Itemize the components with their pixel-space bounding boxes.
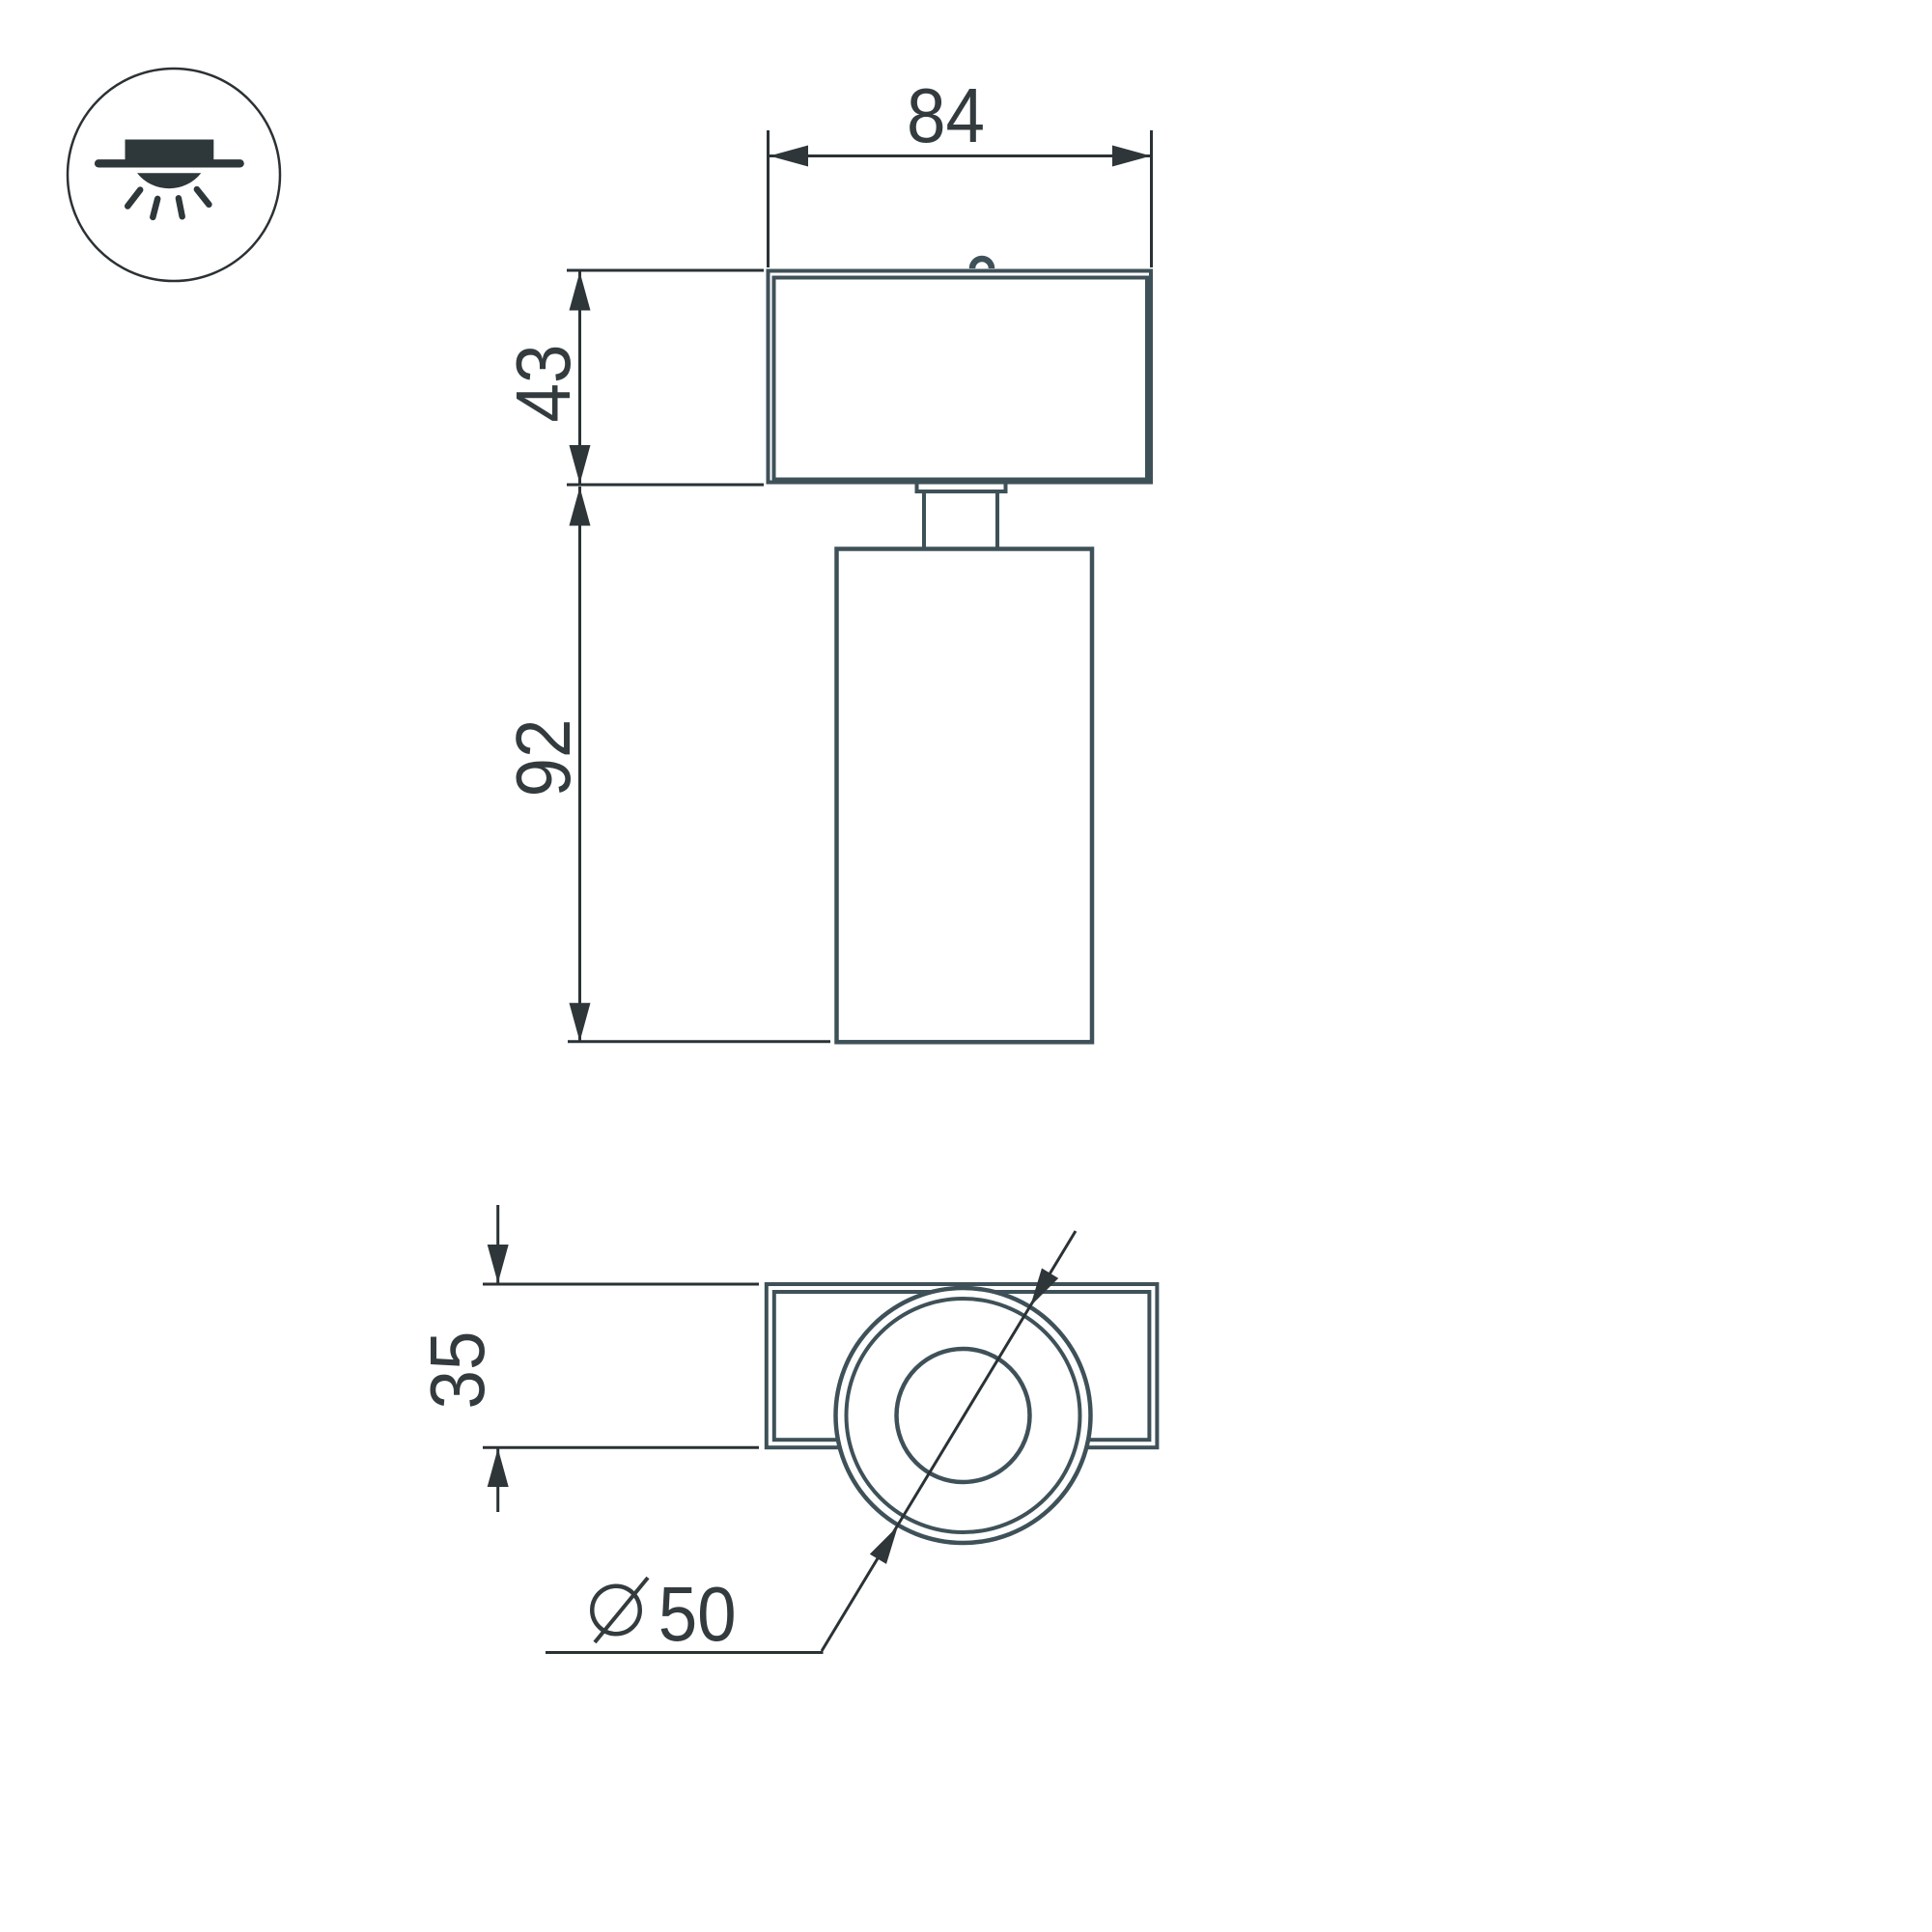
svg-text:35: 35	[415, 1331, 501, 1410]
svg-text:92: 92	[501, 719, 587, 798]
svg-text:50: 50	[658, 1572, 737, 1658]
svg-text:84: 84	[907, 73, 985, 159]
svg-text:43: 43	[501, 345, 587, 423]
